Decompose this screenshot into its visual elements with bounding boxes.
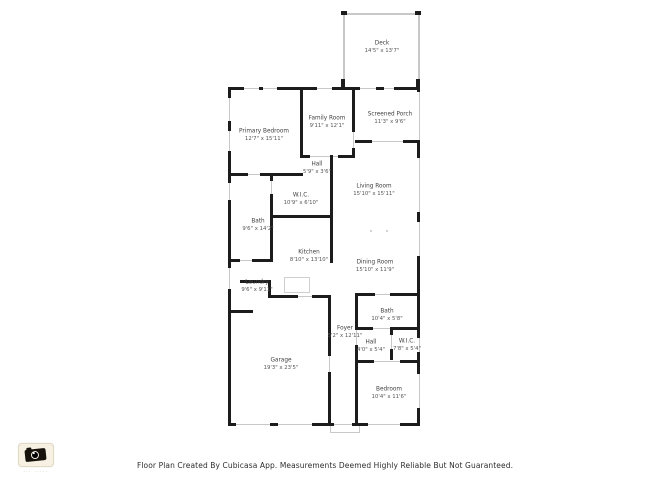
room-label-garage: Garage 19'3" x 23'5" [244, 357, 318, 371]
wall-segment [416, 79, 420, 88]
room-dimensions: 15'10" x 11'9" [338, 266, 412, 273]
room-dimensions: 7'8" x 5'4" [370, 345, 444, 352]
room-name: W.I.C. [264, 192, 338, 199]
room-dimensions: 9'6" x 14'2" [221, 225, 295, 232]
wall-segment [268, 295, 298, 298]
window-segment [418, 13, 420, 87]
window-segment [334, 424, 352, 425]
room-dimensions: 10'9" x 6'10" [264, 199, 338, 206]
window-segment [244, 88, 259, 89]
room-dimensions: 5'2" x 12'11" [308, 332, 382, 339]
room-label-screened-porch: Screened Porch 11'3" x 9'6" [353, 111, 427, 125]
wall-segment [417, 352, 420, 374]
window-segment [240, 260, 252, 261]
wall-segment [228, 173, 248, 176]
room-label-primary-bedroom: Primary Bedroom 12'7" x 15'11" [227, 128, 301, 142]
window-segment [263, 88, 277, 89]
floorplan-canvas: Deck 14'5" x 13'7" Primary Bedroom 12'7"… [0, 0, 650, 488]
wall-segment [228, 87, 231, 98]
room-name: Hall [334, 339, 408, 346]
wall-segment [355, 293, 358, 330]
window-segment [236, 424, 270, 425]
window-segment [419, 92, 420, 140]
window-segment [419, 222, 420, 256]
room-name: Deck [345, 40, 419, 47]
room-dimensions: 12'7" x 15'11" [227, 135, 301, 142]
wall-segment [355, 140, 372, 143]
window-segment [343, 13, 345, 87]
room-name: Bedroom [352, 386, 426, 393]
window-segment [419, 158, 420, 212]
ceiling-fixture-dot [386, 230, 388, 232]
window-segment [229, 131, 230, 151]
camera-body [24, 448, 46, 462]
camera-icon [18, 443, 54, 467]
room-name: Dining Room [338, 259, 412, 266]
window-segment [229, 183, 230, 200]
room-name: Bath [350, 308, 424, 315]
wall-segment [270, 194, 273, 259]
wall-segment [328, 295, 331, 356]
photographer-logo: ··· ····· [18, 443, 54, 474]
wall-segment [330, 155, 333, 263]
wall-segment [332, 87, 360, 90]
wall-segment [240, 280, 270, 283]
wall-segment [300, 155, 310, 158]
wall-segment [355, 293, 375, 296]
window-segment [248, 174, 260, 175]
logo-caption: ··· ····· [18, 469, 54, 474]
window-segment [330, 432, 360, 433]
room-label-deck: Deck 14'5" x 13'7" [345, 40, 419, 54]
room-name: Screened Porch [353, 111, 427, 118]
window-segment [298, 296, 312, 297]
window-segment [356, 330, 357, 345]
room-dimensions: 10'4" x 5'8" [350, 315, 424, 322]
room-name: Hall [280, 161, 354, 168]
window-segment [368, 424, 400, 425]
wall-segment [390, 327, 393, 335]
room-label-wic-upper: W.I.C. 10'9" x 6'10" [264, 192, 338, 206]
counter-outline [284, 277, 310, 293]
wall-segment [355, 345, 358, 423]
wall-segment [270, 423, 278, 426]
room-label-wic-lower: W.I.C. 7'8" x 5'4" [370, 338, 444, 352]
wall-segment [312, 423, 322, 426]
room-label-bedroom: Bedroom 10'4" x 11'6" [352, 386, 426, 400]
window-segment [229, 98, 230, 121]
wall-segment [376, 87, 384, 90]
window-segment [229, 268, 230, 289]
wall-segment [228, 121, 231, 131]
window-segment [329, 356, 330, 372]
wall-segment [252, 259, 273, 262]
room-dimensions: 4'0" x 5'4" [334, 346, 408, 353]
wall-segment [228, 200, 231, 268]
wall-segment [403, 140, 418, 143]
camera-flash [26, 447, 31, 451]
camera-lens [30, 450, 39, 459]
room-dimensions: 19'3" x 23'5" [244, 364, 318, 371]
room-name: Kitchen [272, 249, 346, 256]
room-name: Garage [244, 357, 318, 364]
wall-segment [355, 360, 374, 363]
room-dimensions: 15'10" x 15'11" [337, 190, 411, 197]
wall-segment [352, 148, 355, 158]
room-dimensions: 8'10" x 13'10" [272, 256, 346, 263]
room-name: Bath [221, 218, 295, 225]
room-label-bath-lower: Bath 10'4" x 5'8" [350, 308, 424, 322]
window-segment [317, 88, 332, 89]
window-segment [419, 374, 420, 408]
room-dimensions: 9'6" x 9'11" [220, 286, 294, 293]
wall-segment [228, 151, 231, 183]
wall-segment [228, 310, 253, 313]
window-segment [419, 338, 420, 352]
wall-segment [400, 360, 420, 363]
wall-segment [300, 87, 303, 155]
window-segment [372, 141, 403, 142]
wall-segment [390, 293, 420, 296]
room-name: Primary Bedroom [227, 128, 301, 135]
room-name: W.I.C. [370, 338, 444, 345]
wall-segment [417, 212, 420, 222]
wall-segment [277, 87, 317, 90]
footer-disclaimer: Floor Plan Created By Cubicasa App. Meas… [0, 461, 650, 470]
wall-segment [228, 259, 240, 262]
room-label-kitchen: Kitchen 8'10" x 13'10" [272, 249, 346, 263]
room-dimensions: 11'3" x 9'6" [353, 118, 427, 125]
window-segment [343, 13, 420, 15]
wall-segment [400, 423, 420, 426]
window-segment [271, 181, 272, 194]
wall-segment [270, 215, 330, 218]
wall-segment [270, 173, 273, 181]
wall-segment [355, 327, 373, 330]
window-segment [278, 424, 312, 425]
wall-segment [417, 256, 420, 338]
wall-segment [415, 11, 421, 15]
wall-segment [322, 423, 334, 426]
window-segment [374, 361, 400, 362]
room-dimensions: 14'5" x 13'7" [345, 47, 419, 54]
wall-segment [228, 423, 236, 426]
window-segment [360, 88, 376, 89]
wall-segment [341, 79, 345, 88]
window-segment [353, 132, 354, 148]
room-label-living-room: Living Room 15'10" x 15'11" [337, 183, 411, 197]
wall-segment [260, 173, 303, 176]
window-segment [310, 156, 338, 157]
room-name: Living Room [337, 183, 411, 190]
wall-segment [352, 87, 355, 132]
wall-segment [390, 327, 420, 330]
wall-segment [390, 349, 393, 360]
room-dimensions: 10'4" x 11'6" [352, 393, 426, 400]
room-label-bath-upper: Bath 9'6" x 14'2" [221, 218, 295, 232]
room-label-dining-room: Dining Room 15'10" x 11'9" [338, 259, 412, 273]
window-segment [384, 88, 394, 89]
wall-segment [328, 372, 331, 423]
window-segment [373, 328, 390, 329]
lens-highlight [32, 452, 34, 454]
room-label-hall-lower: Hall 4'0" x 5'4" [334, 339, 408, 353]
wall-segment [341, 11, 347, 15]
window-segment [391, 335, 392, 349]
window-segment [375, 294, 390, 295]
ceiling-fixture-dot [370, 230, 372, 232]
